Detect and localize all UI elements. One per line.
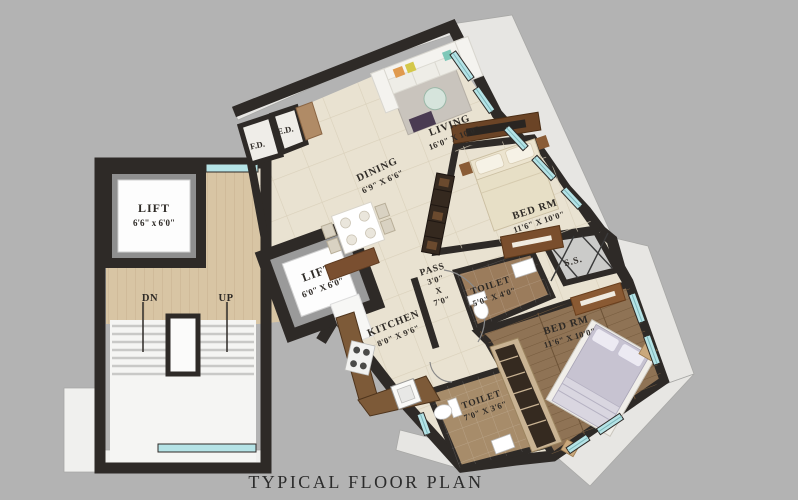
lift-main: LIFT 6'6" x 6'0" — [102, 164, 206, 268]
plan-title: TYPICAL FLOOR PLAN — [248, 472, 483, 492]
stairs-up-label: UP — [219, 293, 234, 304]
stairs-down-label: DN — [142, 293, 158, 304]
lift-main-dims: 6'6" x 6'0" — [133, 218, 175, 228]
stair-well-void — [168, 316, 198, 374]
lift-main-label: LIFT — [138, 201, 170, 215]
staircase-block — [110, 302, 256, 462]
floor-plan-canvas: LIFT 6'6" x 6'0" DN UP F.D. E.D. LIFT 6'… — [0, 0, 798, 500]
lift-main-cab — [118, 180, 190, 252]
stair-window — [158, 444, 256, 452]
floor-plan-page: LIFT 6'6" x 6'0" DN UP F.D. E.D. LIFT 6'… — [0, 0, 798, 500]
